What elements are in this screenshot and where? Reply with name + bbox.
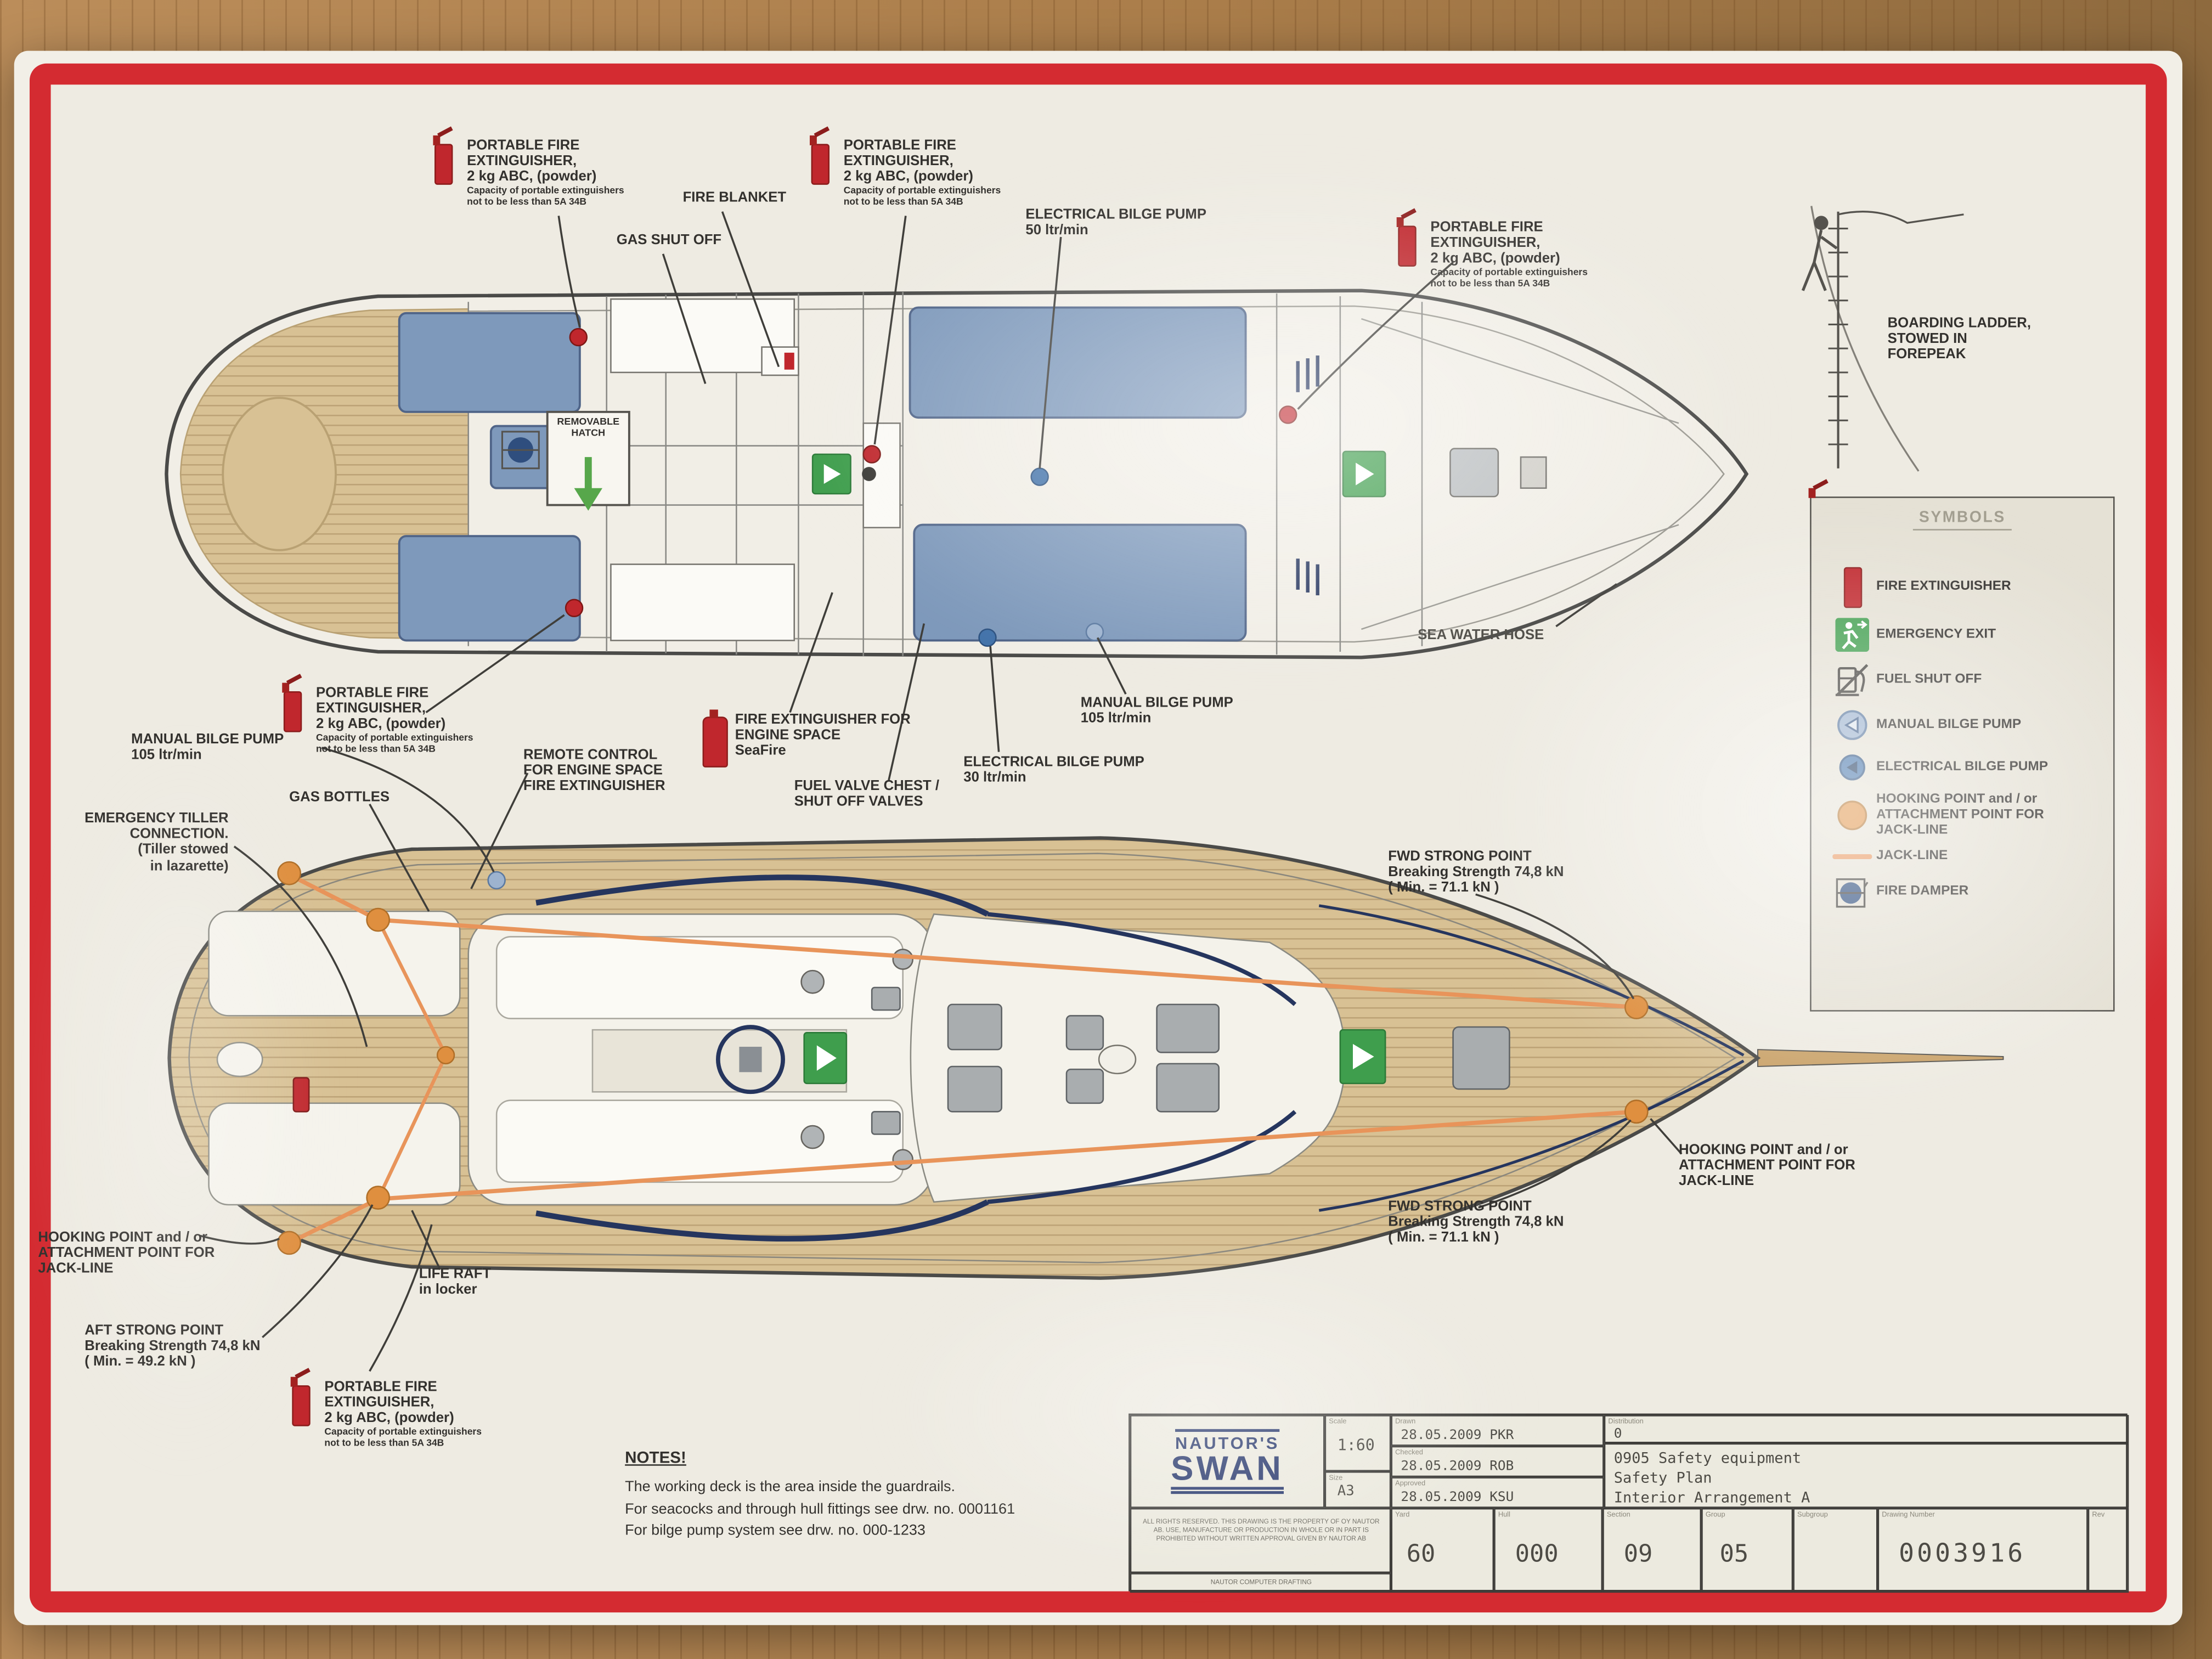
approved-cell: Approved 28.05.2009 KSU — [1391, 1477, 1604, 1508]
label-hooking-point-aft: HOOKING POINT and / orATTACHMENT POINT F… — [38, 1230, 215, 1277]
label-hooking-point-right: HOOKING POINT and / orATTACHMENT POINT F… — [1679, 1143, 1855, 1190]
drawn-cell: Drawn 28.05.2009 PKR — [1391, 1415, 1604, 1446]
deck-plan-bottom — [170, 838, 2004, 1278]
drawn-value: 28.05.2009 PKR — [1401, 1427, 1602, 1443]
group-value: 05 — [1720, 1541, 1792, 1568]
drafting-credit-cell: NAUTOR COMPUTER DRAFTING — [1130, 1573, 1391, 1593]
fire-extinguisher-icon — [435, 144, 453, 185]
label-manual-bilge-pump-105-center: MANUAL BILGE PUMP105 ltr/min — [1081, 696, 1233, 727]
label-sea-water-hose: SEA WATER HOSE — [1418, 628, 1544, 644]
label-boarding-ladder: BOARDING LADDER,STOWED INFOREPEAK — [1888, 316, 2031, 363]
legend-item-manual-bilge-pump: MANUAL BILGE PUMP — [1812, 708, 2113, 742]
legend-item-fire-extinguisher: FIRE EXTINGUISHER — [1812, 567, 2113, 608]
nautors-swan-logo: NAUTOR'S SWAN — [1131, 1417, 1323, 1507]
section-value: 09 — [1624, 1541, 1700, 1568]
label-fwd-strong-point-top: FWD STRONG POINTBreaking Strength 74,8 k… — [1388, 849, 1564, 896]
label-engine-space-extinguisher: FIRE EXTINGUISHER FORENGINE SPACESeaFire — [735, 713, 911, 760]
engine-extinguisher-bottle-icon — [703, 716, 728, 768]
label-portable-fire-extinguisher-1: PORTABLE FIREEXTINGUISHER, 2 kg ABC, (po… — [467, 138, 624, 210]
legend-title: SYMBOLS — [1913, 509, 2012, 531]
label-manual-bilge-pump-105-left: MANUAL BILGE PUMP105 ltr/min — [131, 732, 284, 764]
label-portable-fire-extinguisher-3: PORTABLE FIREEXTINGUISHER, 2 kg ABC, (po… — [1430, 220, 1588, 291]
legal-text: ALL RIGHTS RESERVED. THIS DRAWING IS THE… — [1131, 1509, 1390, 1543]
hull-cell: Hull 000 — [1494, 1508, 1602, 1593]
title-block: NAUTOR'S SWAN Scale 1:60 Size A3 Drawn 2… — [1128, 1414, 2128, 1592]
label-emergency-tiller: EMERGENCY TILLERCONNECTION. (Tiller stow… — [57, 811, 229, 874]
legend-item-hooking-point: HOOKING POINT and / or ATTACHMENT POINT … — [1812, 793, 2113, 839]
fire-damper-icon — [1829, 874, 1876, 911]
manual-bilge-pump-icon — [1829, 708, 1876, 742]
label-portable-fire-extinguisher-4: PORTABLE FIREEXTINGUISHER, 2 kg ABC, (po… — [316, 686, 473, 757]
notes-heading: NOTES! — [625, 1450, 1015, 1468]
label-fuel-valve-chest: FUEL VALVE CHEST /SHUT OFF VALVES — [794, 778, 939, 810]
rev-cell: Rev — [2088, 1508, 2129, 1593]
fire-extinguisher-icon — [1829, 567, 1876, 608]
photo-of-safety-plan: PORTABLE FIREEXTINGUISHER, 2 kg ABC, (po… — [0, 0, 2212, 1659]
label-electrical-bilge-pump-30: ELECTRICAL BILGE PUMP30 ltr/min — [963, 755, 1144, 787]
label-gas-shut-off: GAS SHUT OFF — [617, 233, 721, 249]
legend-item-fuel-shut-off: FUEL SHUT OFF — [1812, 662, 2113, 698]
label-fwd-strong-point-bottom: FWD STRONG POINTBreaking Strength 74,8 k… — [1388, 1199, 1564, 1246]
size-cell: Size A3 — [1325, 1471, 1391, 1508]
checked-cell: Checked 28.05.2009 ROB — [1391, 1446, 1604, 1477]
legal-cell: ALL RIGHTS RESERVED. THIS DRAWING IS THE… — [1130, 1508, 1391, 1573]
yard-cell: Yard 60 — [1391, 1508, 1494, 1593]
group-cell: Group 05 — [1701, 1508, 1793, 1593]
approved-value: 28.05.2009 KSU — [1401, 1489, 1602, 1505]
hooking-point-icon — [1829, 799, 1876, 833]
notes-block: NOTES! The working deck is the area insi… — [625, 1450, 1015, 1541]
scale-cell: Scale 1:60 — [1325, 1415, 1391, 1471]
label-remote-control: REMOTE CONTROLFOR ENGINE SPACEFIRE EXTIN… — [523, 748, 665, 795]
legend-item-emergency-exit: EMERGENCY EXIT — [1812, 618, 2113, 652]
jack-line-icon — [1829, 851, 1876, 862]
fire-extinguisher-icon — [1398, 225, 1416, 267]
legend-item-electrical-bilge-pump: ELECTRICAL BILGE PUMP — [1812, 752, 2113, 783]
emergency-exit-icon — [1829, 618, 1876, 652]
label-electrical-bilge-pump-50: ELECTRICAL BILGE PUMP50 ltr/min — [1025, 207, 1206, 239]
drawing-number-cell: Drawing Number 0003916 — [1878, 1508, 2088, 1593]
drafting-credit: NAUTOR COMPUTER DRAFTING — [1131, 1575, 1390, 1587]
scale-value: 1:60 — [1338, 1436, 1390, 1454]
title-block-logo-cell: NAUTOR'S SWAN — [1130, 1415, 1325, 1508]
subgroup-cell: Subgroup — [1793, 1508, 1877, 1593]
yard-value: 60 — [1407, 1541, 1493, 1568]
symbols-legend: SYMBOLS FIRE EXTINGUISHER EMERGENCY EXIT… — [1810, 496, 2114, 1012]
legend-item-jack-line: JACK-LINE — [1812, 849, 2113, 864]
drawing-number-value: 0003916 — [1899, 1539, 2086, 1568]
label-fire-blanket: FIRE BLANKET — [683, 190, 787, 206]
fire-extinguisher-icon — [284, 691, 302, 732]
deck-plan-top — [166, 291, 1746, 658]
legend-item-fire-damper: FIRE DAMPER — [1812, 874, 2113, 911]
fire-extinguisher-icon — [292, 1385, 310, 1426]
label-life-raft: LIFE RAFTin locker — [419, 1267, 491, 1299]
size-value: A3 — [1338, 1484, 1390, 1499]
label-portable-fire-extinguisher-2: PORTABLE FIREEXTINGUISHER, 2 kg ABC, (po… — [844, 138, 1001, 210]
label-removable-hatch: REMOVABLEHATCH — [549, 417, 628, 439]
hull-value: 000 — [1515, 1541, 1601, 1568]
drawing-title: 0905 Safety equipment Safety Plan Interi… — [1614, 1449, 2128, 1508]
section-cell: Section 09 — [1602, 1508, 1701, 1593]
label-portable-fire-extinguisher-5: PORTABLE FIREEXTINGUISHER, 2 kg ABC, (po… — [324, 1380, 482, 1451]
label-aft-strong-point: AFT STRONG POINTBreaking Strength 74,8 k… — [84, 1323, 260, 1370]
fire-extinguisher-icon — [811, 144, 830, 185]
fuel-shut-off-icon — [1829, 662, 1876, 698]
checked-value: 28.05.2009 ROB — [1401, 1459, 1602, 1474]
distribution-cell: Distribution 0 — [1604, 1415, 2129, 1443]
drawing-title-cell: 0905 Safety equipment Safety Plan Interi… — [1604, 1443, 2129, 1508]
electrical-bilge-pump-icon — [1829, 752, 1876, 783]
label-gas-bottles: GAS BOTTLES — [289, 790, 390, 806]
distribution-value: 0 — [1614, 1426, 2128, 1442]
